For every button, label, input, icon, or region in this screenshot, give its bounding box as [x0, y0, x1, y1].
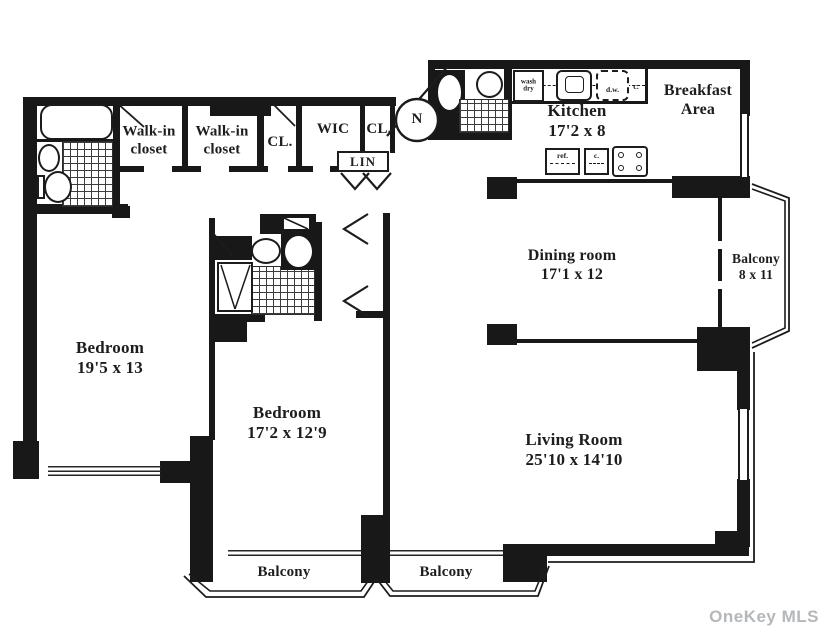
label-dims: 8 x 11	[732, 267, 780, 283]
room-label-closet-1: CL.	[267, 134, 292, 152]
label-line: Balcony	[732, 251, 780, 267]
label-dims: 17'1 x 12	[528, 266, 617, 285]
room-label-dining-room: Dining room 17'1 x 12	[528, 247, 617, 285]
label-line: Dining room	[528, 247, 617, 266]
door-chevron	[344, 214, 368, 244]
label-dims: 17'2 x 8	[547, 121, 606, 141]
room-label-balcony-left: Balcony	[257, 564, 310, 582]
room-label-walkin-closet-1: Walk-in closet	[122, 123, 175, 158]
label-dims: 19'5 x 13	[76, 358, 144, 378]
door-swing	[212, 232, 233, 256]
door-swing	[284, 218, 308, 229]
label-line: Area	[664, 101, 732, 120]
label-line: closet	[195, 141, 248, 159]
room-label-closet-2: CL.	[366, 121, 391, 139]
room-label-wic: WIC	[317, 121, 349, 139]
label-line: Living Room	[525, 430, 622, 450]
room-label-balcony-right: Balcony 8 x 11	[732, 251, 780, 283]
label-dims: 17'2 x 12'9	[247, 423, 327, 443]
watermark: OneKey MLS	[709, 607, 819, 627]
door-chevron	[344, 286, 368, 316]
room-label-bedroom-2: Bedroom 17'2 x 12'9	[247, 403, 327, 443]
label-line: Walk-in	[122, 123, 175, 141]
label-dims: 25'10 x 14'10	[525, 450, 622, 470]
label-line: Breakfast	[664, 82, 732, 101]
room-label-walkin-closet-2: Walk-in closet	[195, 123, 248, 158]
floor-plan: wash dry d.w. c. ref. c. LIN	[0, 0, 825, 632]
label-line: Bedroom	[76, 338, 144, 358]
door-swing	[272, 103, 295, 126]
shower-line	[221, 265, 235, 309]
room-label-breakfast-area: Breakfast Area	[664, 82, 732, 120]
label-line: Bedroom	[247, 403, 327, 423]
label-line: Walk-in	[195, 123, 248, 141]
compass-north-label: N	[411, 111, 422, 129]
room-label-kitchen: Kitchen 17'2 x 8	[547, 101, 606, 141]
room-label-living-room: Living Room 25'10 x 14'10	[525, 430, 622, 470]
room-label-balcony-mid: Balcony	[419, 564, 472, 582]
label-line: Kitchen	[547, 101, 606, 121]
label-line: closet	[122, 141, 175, 159]
room-label-bedroom-1: Bedroom 19'5 x 13	[76, 338, 144, 378]
shower-line	[235, 265, 250, 309]
